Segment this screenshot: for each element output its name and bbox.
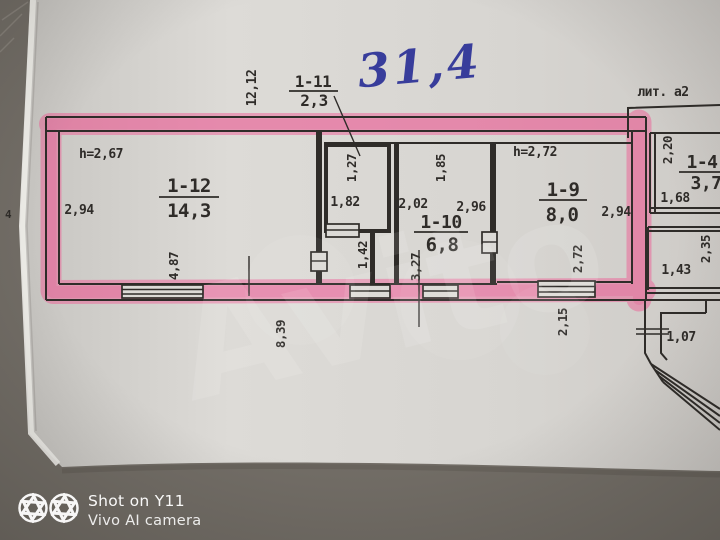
camera-label: Vivo AI camera [88,513,201,529]
shot-on-label: Shot on Y11 [88,492,185,510]
photo-vignette [0,0,720,540]
floor-plan-photo: 1-11 2,3 h=2,67 1-12 14,3 1-10 6,8 h=2,7… [0,0,720,540]
photo-canvas: 1-11 2,3 h=2,67 1-12 14,3 1-10 6,8 h=2,7… [0,0,720,540]
